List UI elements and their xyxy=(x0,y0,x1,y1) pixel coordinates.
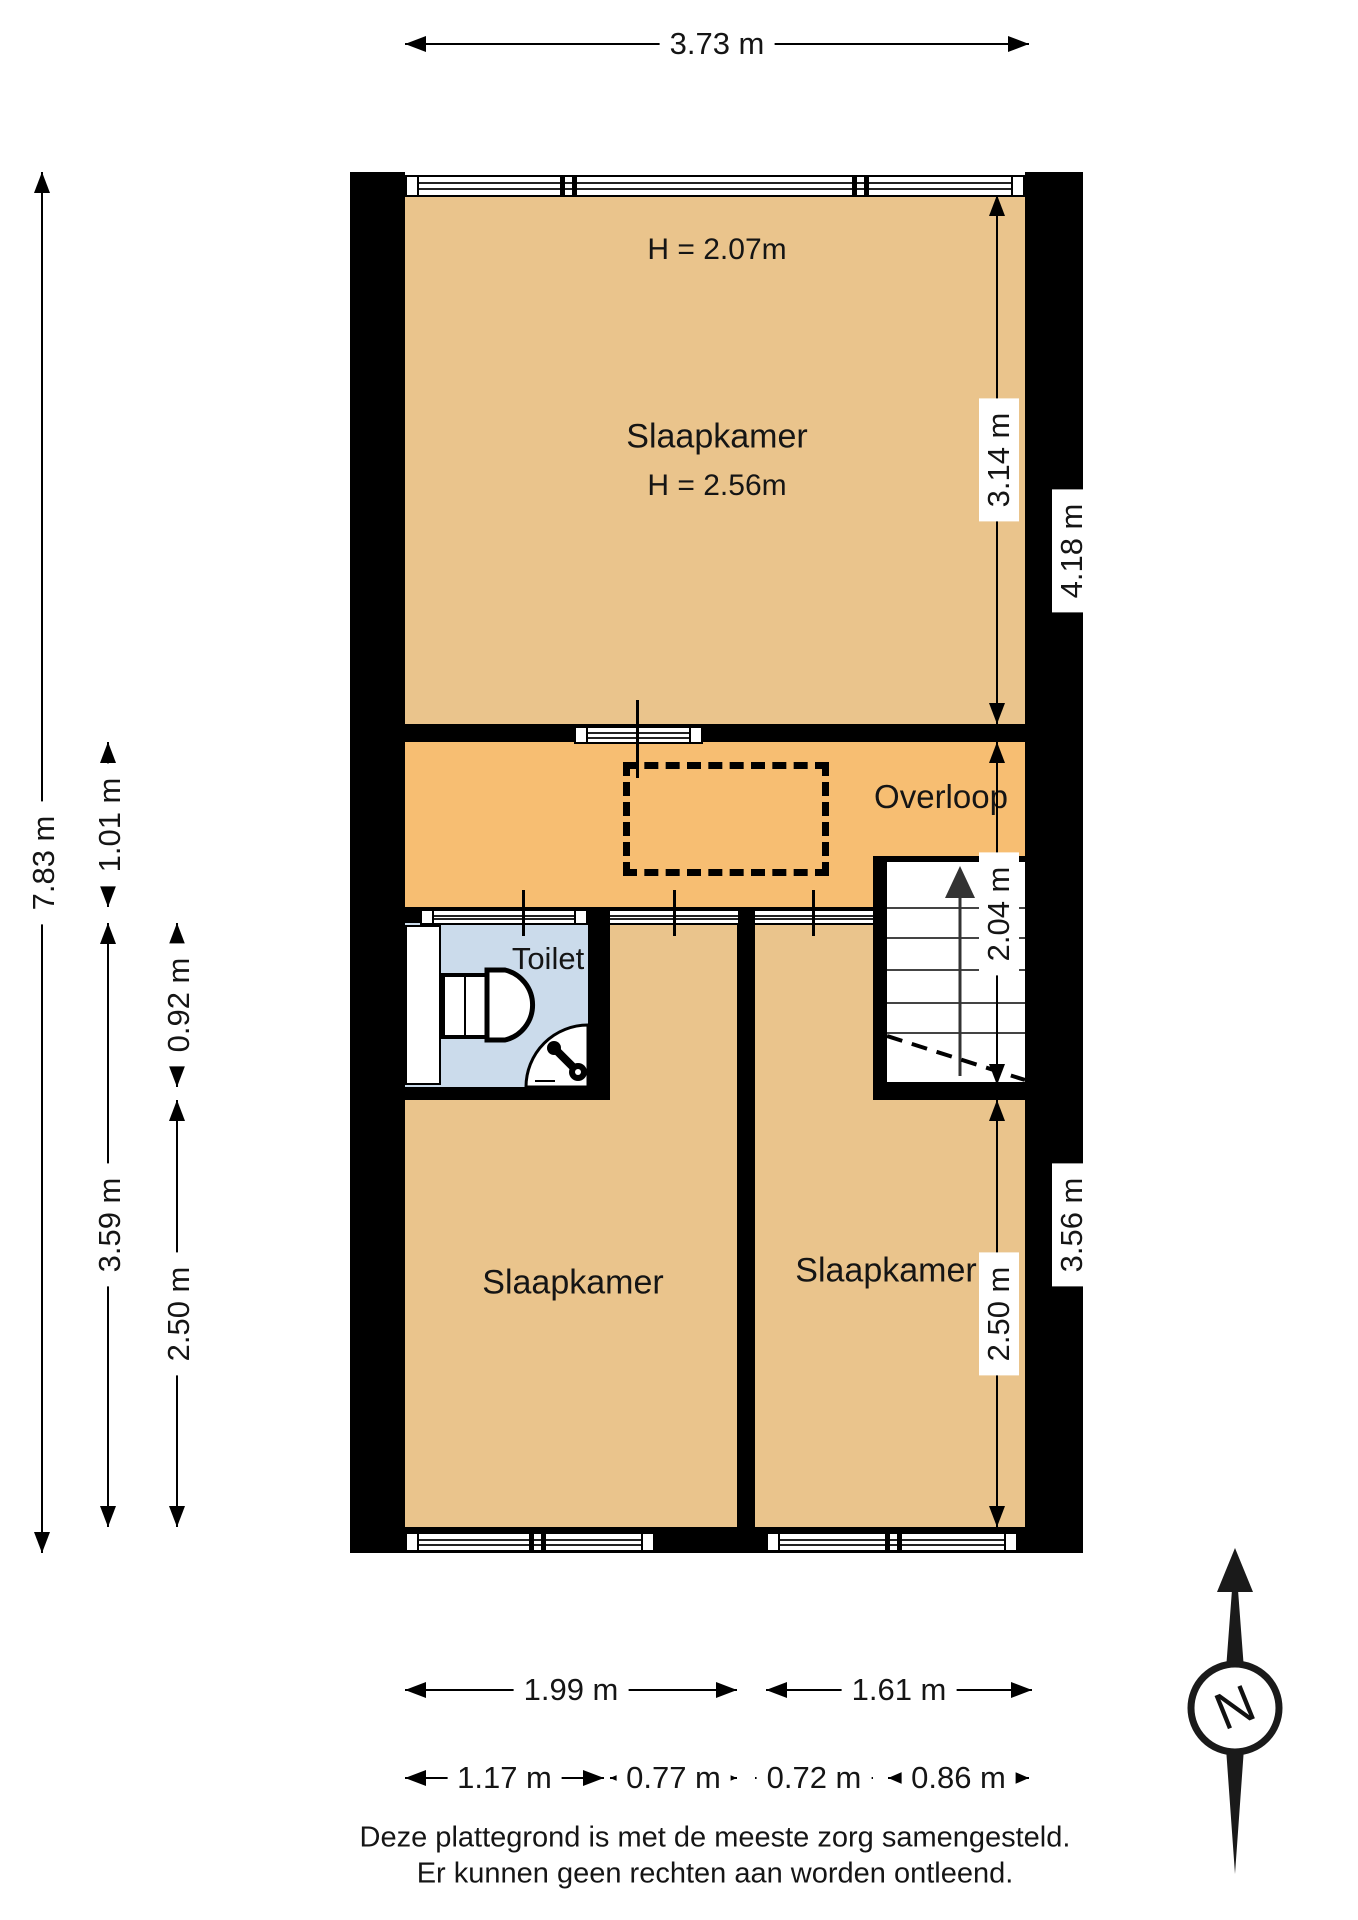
footer-disclaimer-line2: Er kunnen geen rechten aan worden ontlee… xyxy=(417,1858,1014,1891)
wall-left-outer xyxy=(350,172,405,1553)
dim-right-lower-height: 3.56 m xyxy=(1069,923,1071,1527)
dim-bottom-w3-label: 0.72 m xyxy=(757,1760,872,1796)
window-bottom-left xyxy=(405,1532,655,1552)
dim-width-total-label: 3.73 m xyxy=(660,26,775,62)
dim-bedroom-top-height-label: 3.14 m xyxy=(979,398,1019,521)
stair-direction-arrow xyxy=(945,866,975,898)
dim-bedroom-top-height: 3.14 m xyxy=(996,195,998,724)
dim-bedroom-right-height-label: 2.50 m xyxy=(979,1252,1019,1375)
bedroom-top-ceiling-label: H = 2.56m xyxy=(647,469,786,503)
bedroom-top-label: Slaapkamer xyxy=(626,418,807,457)
corner-sink-icon xyxy=(526,1025,588,1087)
wall-right-outer xyxy=(1025,172,1083,1553)
dim-toilet-height-label: 0.92 m xyxy=(159,944,199,1067)
dim-landing-height: 1.01 m xyxy=(107,742,109,907)
dim-upper-right-height: 4.18 m xyxy=(1069,195,1071,907)
dim-height-total: 7.83 m xyxy=(41,172,43,1553)
compass-icon: N xyxy=(1150,1548,1320,1878)
dim-bottom-w1-label: 1.17 m xyxy=(447,1760,562,1796)
dim-stair-zone-height-label: 2.04 m xyxy=(979,852,1019,975)
void-dashed-outline xyxy=(623,762,829,876)
window-top-facade xyxy=(405,175,1025,197)
dim-bedroom-right-height: 2.50 m xyxy=(996,1100,998,1527)
dim-bedroom-right-width-label: 1.61 m xyxy=(842,1672,957,1708)
wall-bedroom-divider xyxy=(737,907,755,1553)
dim-width-total: 3.73 m xyxy=(405,43,1029,45)
window-tick xyxy=(673,890,676,936)
window-bottom-right xyxy=(766,1532,1018,1552)
dim-height-total-label: 7.83 m xyxy=(24,801,64,924)
dim-bedroom-left-height-label: 2.50 m xyxy=(159,1252,199,1375)
landing-label: Overloop xyxy=(874,778,1008,816)
dim-bedroom-left-height: 2.50 m xyxy=(176,1100,178,1527)
dim-bottom-w3: 0.72 m xyxy=(755,1777,873,1779)
wall-toilet-bottom xyxy=(350,1087,610,1100)
bedroom-left-label: Slaapkamer xyxy=(482,1264,663,1303)
dim-landing-height-label: 1.01 m xyxy=(90,763,130,886)
dim-left-lower-height-label: 3.59 m xyxy=(90,1164,130,1287)
bedroom-top-ceiling-low-label: H = 2.07m xyxy=(647,233,786,267)
dim-bottom-w2-label: 0.77 m xyxy=(616,1760,731,1796)
dim-stair-zone-height: 2.04 m xyxy=(996,742,998,1085)
toilet-label: Toilet xyxy=(512,941,584,977)
wall-stair-left xyxy=(873,856,887,1100)
dim-left-lower-height: 3.59 m xyxy=(107,923,109,1527)
toilet-bowl-icon xyxy=(443,970,533,1040)
dim-bottom-w1: 1.17 m xyxy=(405,1777,604,1779)
dim-upper-right-height-label: 4.18 m xyxy=(1052,490,1092,613)
bedroom-top-floor xyxy=(405,193,1025,724)
floorplan-page: H = 2.07m Slaapkamer H = 2.56m Overloop … xyxy=(0,0,1358,1920)
dim-right-lower-height-label: 3.56 m xyxy=(1052,1164,1092,1287)
wall-bedroom-landing xyxy=(405,724,1025,742)
dim-toilet-height: 0.92 m xyxy=(176,923,178,1087)
dim-bedroom-right-width: 1.61 m xyxy=(766,1689,1032,1691)
footer-disclaimer-line1: Deze plattegrond is met de meeste zorg s… xyxy=(360,1822,1071,1855)
dim-bottom-w4-label: 0.86 m xyxy=(901,1760,1016,1796)
bedroom-right-label: Slaapkamer xyxy=(795,1252,976,1291)
wall-toilet-right xyxy=(588,907,610,1100)
dim-bottom-w4: 0.86 m xyxy=(888,1777,1029,1779)
bedroom-right-neck-floor xyxy=(755,923,873,1100)
dim-bedroom-left-width: 1.99 m xyxy=(405,1689,737,1691)
dim-bedroom-left-width-label: 1.99 m xyxy=(514,1672,629,1708)
window-tick xyxy=(812,890,815,936)
dim-bottom-w2: 0.77 m xyxy=(610,1777,737,1779)
